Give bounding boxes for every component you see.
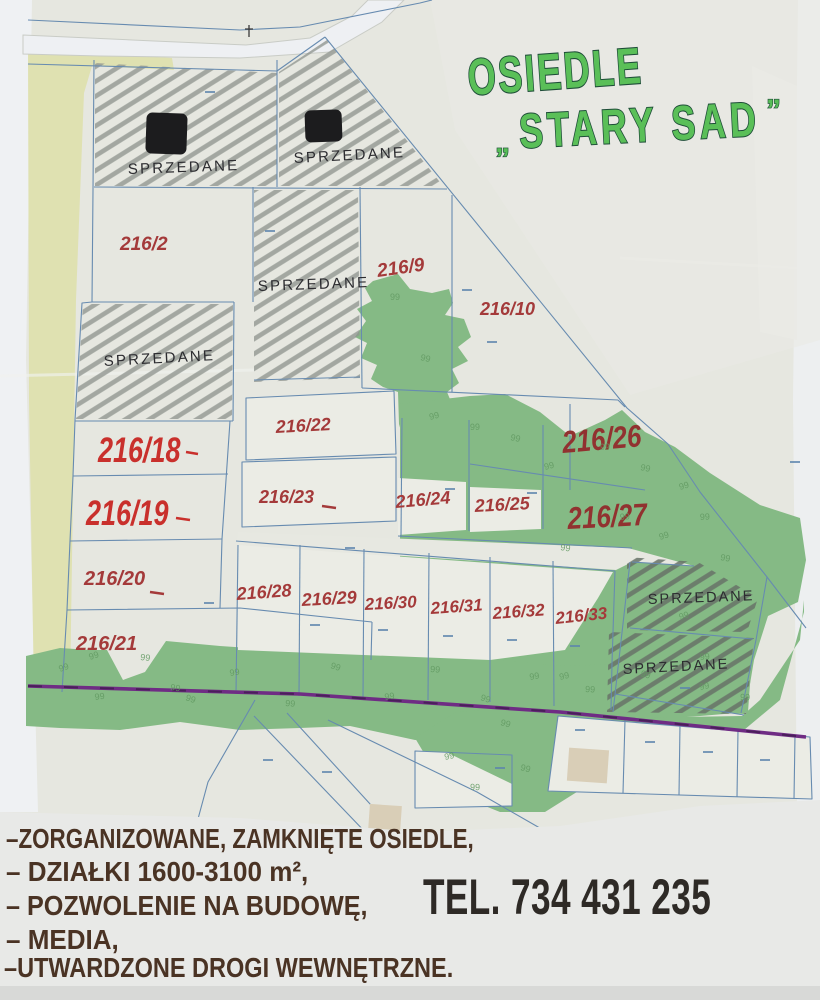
svg-text:99: 99 — [640, 462, 652, 474]
svg-text:TEL. 734 431 235: TEL. 734 431 235 — [423, 870, 711, 926]
svg-text:216/31: 216/31 — [429, 595, 483, 618]
svg-text:216/32: 216/32 — [491, 600, 546, 623]
svg-text:216/28: 216/28 — [235, 580, 292, 604]
svg-text:99: 99 — [619, 511, 630, 522]
svg-text:99: 99 — [470, 782, 480, 792]
svg-text:216/18: 216/18 — [97, 431, 181, 470]
svg-text:99: 99 — [384, 691, 395, 702]
svg-text:99: 99 — [470, 422, 480, 432]
svg-text:216/21: 216/21 — [75, 633, 137, 655]
svg-text:„: „ — [495, 126, 510, 159]
svg-text:99: 99 — [510, 432, 522, 444]
svg-text:99: 99 — [170, 682, 181, 693]
svg-text:99: 99 — [720, 552, 732, 564]
svg-text:216/25: 216/25 — [473, 493, 531, 516]
svg-text:99: 99 — [698, 680, 710, 692]
svg-text:99: 99 — [390, 292, 400, 302]
svg-text:99: 99 — [229, 667, 240, 678]
svg-text:216/29: 216/29 — [300, 587, 357, 610]
svg-text:99: 99 — [140, 652, 151, 663]
svg-text:99: 99 — [585, 684, 596, 695]
svg-text:99: 99 — [600, 442, 610, 452]
svg-text:– MEDIA,: – MEDIA, — [6, 924, 119, 955]
svg-text:216/10: 216/10 — [479, 299, 535, 319]
svg-text:216/20: 216/20 — [83, 568, 145, 590]
svg-text:99: 99 — [94, 691, 105, 702]
svg-text:99: 99 — [529, 670, 541, 682]
svg-text:–UTWARDZONE DROGI WEWNĘTRZNE.: –UTWARDZONE DROGI WEWNĘTRZNE. — [4, 953, 453, 983]
svg-text:216/27: 216/27 — [566, 498, 650, 537]
svg-text:99: 99 — [430, 664, 441, 675]
svg-text:–ZORGANIZOWANE, ZAMKNIĘTE OSIE: –ZORGANIZOWANE, ZAMKNIĘTE OSIEDLE, — [6, 824, 474, 855]
svg-text:99: 99 — [740, 692, 750, 702]
svg-text:216/19: 216/19 — [85, 494, 169, 533]
svg-text:216/2: 216/2 — [119, 234, 168, 255]
svg-text:– POZWOLENIE NA BUDOWĘ,: – POZWOLENIE NA BUDOWĘ, — [6, 890, 368, 922]
svg-text:216/22: 216/22 — [274, 414, 331, 437]
svg-text:99: 99 — [700, 511, 711, 522]
svg-text:”: ” — [766, 94, 781, 127]
svg-text:99: 99 — [699, 651, 710, 662]
svg-text:99: 99 — [285, 698, 296, 709]
svg-text:216/30: 216/30 — [363, 592, 417, 614]
svg-text:99: 99 — [560, 542, 571, 553]
svg-text:216/23: 216/23 — [258, 487, 314, 507]
svg-text:216/26: 216/26 — [560, 419, 644, 461]
svg-text:– DZIAŁKI 1600-3100 m²,: – DZIAŁKI 1600-3100 m², — [6, 856, 308, 887]
svg-text:99: 99 — [443, 750, 455, 762]
